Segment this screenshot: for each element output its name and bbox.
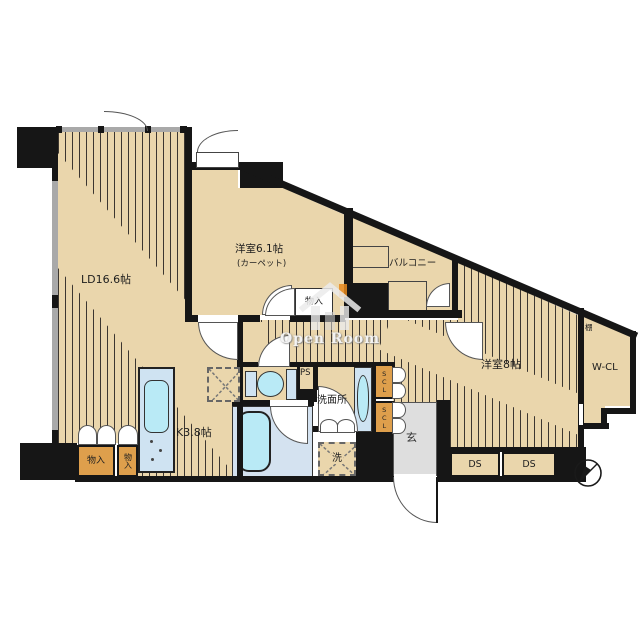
stove-burner <box>159 449 162 452</box>
storage-label: 物入 <box>305 298 323 307</box>
label-shelf: 棚 <box>585 324 593 332</box>
shoe-closet-label: SCL <box>381 370 388 394</box>
folding-door <box>97 425 116 445</box>
wall-pillar <box>20 443 77 480</box>
kitchen-sink <box>144 380 169 433</box>
door-swing <box>104 111 148 131</box>
doorway <box>579 404 583 425</box>
room-label-wcl: W-CL <box>592 363 618 373</box>
window-tick <box>52 168 58 181</box>
folding-door <box>118 425 138 445</box>
wall <box>437 400 450 481</box>
storage-closet: 物入 <box>295 288 333 316</box>
room-label-kitchen: K3.8帖 <box>176 427 212 438</box>
x-mark-icon <box>209 369 238 400</box>
washer-label: 洗 <box>331 454 343 464</box>
wall <box>452 258 458 314</box>
folding-door <box>392 367 406 383</box>
room-label-ld: LD16.6帖 <box>81 274 131 285</box>
wall <box>290 315 345 322</box>
wall <box>185 127 192 322</box>
utility-box <box>207 367 240 402</box>
entry-door-arc <box>393 477 437 523</box>
wall-pillar <box>17 127 58 168</box>
folding-door <box>337 419 355 433</box>
folding-door <box>320 419 338 433</box>
balcony-unit <box>352 246 389 268</box>
room-label-washroom: 洗面所 <box>317 396 347 406</box>
duct-space-label: DS <box>468 460 481 470</box>
entry-door-leaf <box>436 477 438 523</box>
room-label-western-8: 洋室8帖 <box>481 359 521 370</box>
washer-space: 洗 <box>318 442 356 476</box>
stove-burner <box>150 440 153 443</box>
window <box>196 152 239 168</box>
storage-closet: 物入 <box>117 445 138 477</box>
wall <box>308 400 314 406</box>
stove-burner <box>151 458 154 461</box>
room-sublabel-carpet: (カーペット) <box>237 260 286 269</box>
room-label-western-6-1: 洋室6.1帖 <box>235 244 283 255</box>
window-tick <box>56 126 62 133</box>
wall <box>185 315 198 322</box>
wall <box>238 315 260 322</box>
wall <box>344 310 462 318</box>
window-tick <box>52 430 58 444</box>
duct-space: DS <box>450 452 500 477</box>
floor-plan: 物入 物入 SCL SCL DS DS 物入 洗 LD16. <box>0 0 640 640</box>
folding-door <box>78 425 97 445</box>
toilet-basin <box>286 369 297 400</box>
duct-space: DS <box>502 452 556 477</box>
wall <box>356 432 393 477</box>
toilet-tank <box>245 371 257 397</box>
storage-closet: 物入 <box>77 445 115 477</box>
toilet-bowl <box>257 371 284 397</box>
storage-label: 物入 <box>124 453 132 469</box>
washroom-sink <box>357 375 369 422</box>
folding-door <box>392 402 406 418</box>
shoe-closet: SCL <box>374 364 394 399</box>
window-tick <box>180 126 187 133</box>
room-label-balcony: バルコニー <box>389 259 436 269</box>
shoe-closet-label: SCL <box>381 406 388 430</box>
folding-door <box>392 383 406 399</box>
door-swing <box>197 130 238 152</box>
room-label-entrance: 玄 <box>406 432 417 443</box>
shoe-closet: SCL <box>374 401 394 434</box>
window-tick <box>52 295 58 308</box>
storage-label: 物入 <box>87 457 105 466</box>
wall <box>630 331 636 414</box>
compass-icon <box>570 455 606 491</box>
duct-space-label: DS <box>522 460 535 470</box>
folding-door <box>392 418 406 434</box>
label-pipe-space: PS <box>300 369 311 378</box>
